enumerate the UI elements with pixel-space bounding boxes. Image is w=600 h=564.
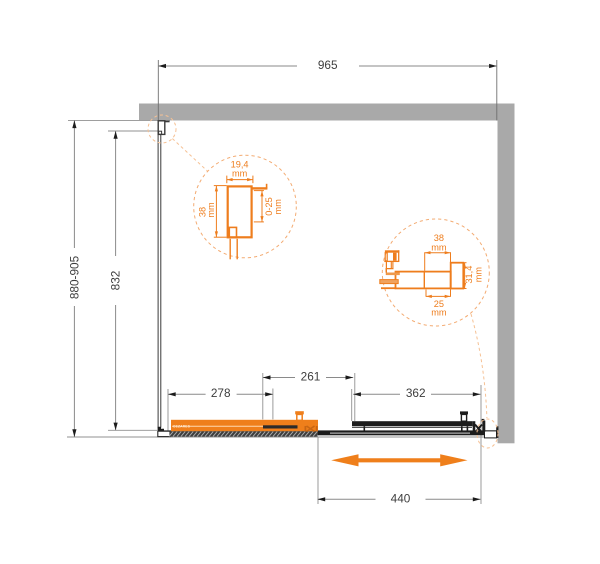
svg-text:440: 440: [391, 492, 411, 506]
svg-text:mm: mm: [206, 202, 216, 218]
svg-text:965: 965: [318, 58, 338, 72]
svg-text:261: 261: [301, 369, 321, 383]
svg-text:mm: mm: [431, 243, 447, 253]
svg-text:880-905: 880-905: [67, 255, 81, 299]
svg-text:38: 38: [434, 233, 444, 243]
svg-text:mm: mm: [473, 267, 483, 283]
svg-text:mm: mm: [431, 308, 447, 318]
svg-text:mm: mm: [232, 169, 248, 179]
svg-text:CEZARES: CEZARES: [173, 425, 190, 429]
svg-text:832: 832: [109, 271, 123, 291]
svg-text:mm: mm: [273, 199, 283, 215]
svg-text:278: 278: [211, 386, 231, 400]
svg-text:362: 362: [406, 386, 426, 400]
